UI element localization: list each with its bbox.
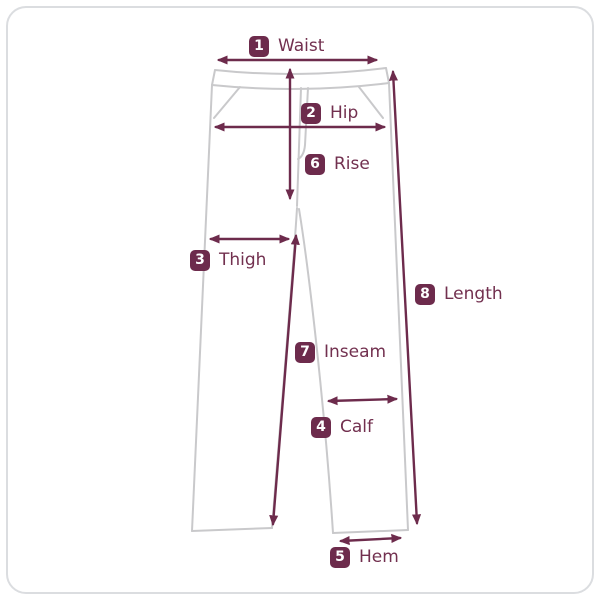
inseam-arrow — [273, 236, 296, 524]
calf-label-text: Calf — [340, 417, 373, 438]
right-pocket-line — [359, 87, 383, 118]
inseam-label-text: Inseam — [324, 342, 386, 363]
waistband-top-edge — [215, 68, 386, 74]
measurement-label-hip: 2 Hip — [301, 103, 358, 124]
hem-label-text: Hem — [359, 547, 399, 568]
calf-number-badge: 4 — [311, 417, 331, 438]
hip-label-text: Hip — [330, 103, 358, 124]
measurement-label-waist: 1 Waist — [249, 36, 324, 57]
thigh-label-text: Thigh — [219, 250, 266, 271]
rise-label-text: Rise — [334, 154, 370, 175]
rise-number-badge: 6 — [305, 154, 325, 175]
measurement-arrows — [211, 60, 417, 541]
thigh-number-badge: 3 — [190, 250, 210, 271]
hem-number-badge: 5 — [330, 547, 350, 568]
measurement-label-inseam: 7 Inseam — [295, 342, 386, 363]
measurement-label-calf: 4 Calf — [311, 417, 373, 438]
measurement-label-rise: 6 Rise — [305, 154, 370, 175]
length-number-badge: 8 — [415, 284, 435, 305]
waist-label-text: Waist — [278, 36, 324, 57]
hem-arrow — [341, 538, 400, 541]
waistband-right-edge — [386, 68, 389, 83]
calf-arrow — [329, 399, 396, 401]
hip-number-badge: 2 — [301, 103, 321, 124]
measurement-label-length: 8 Length — [415, 284, 503, 305]
left-outer-seam — [192, 85, 212, 531]
left-hem-edge — [192, 528, 272, 531]
pants-outline — [192, 68, 408, 533]
waistband-left-edge — [212, 70, 215, 85]
waist-number-badge: 1 — [249, 36, 269, 57]
inseam-number-badge: 7 — [295, 342, 315, 363]
pants-measurement-diagram — [0, 0, 600, 600]
measurement-label-thigh: 3 Thigh — [190, 250, 266, 271]
right-hem-edge — [333, 530, 408, 533]
left-pocket-line — [214, 87, 240, 118]
measurement-label-hem: 5 Hem — [330, 547, 399, 568]
length-label-text: Length — [444, 284, 503, 305]
right-inner-seam — [299, 209, 333, 533]
